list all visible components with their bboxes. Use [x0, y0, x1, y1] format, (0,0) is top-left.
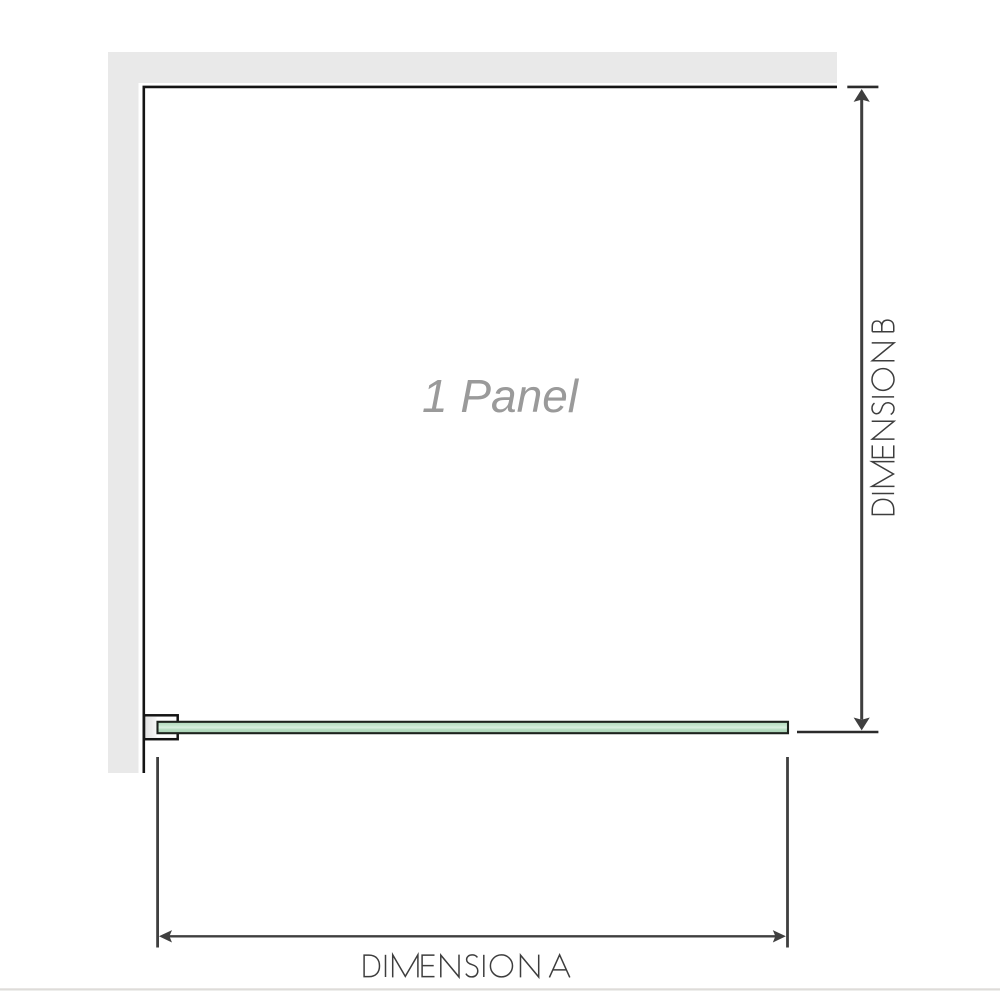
svg-text:1 Panel: 1 Panel [422, 370, 580, 422]
